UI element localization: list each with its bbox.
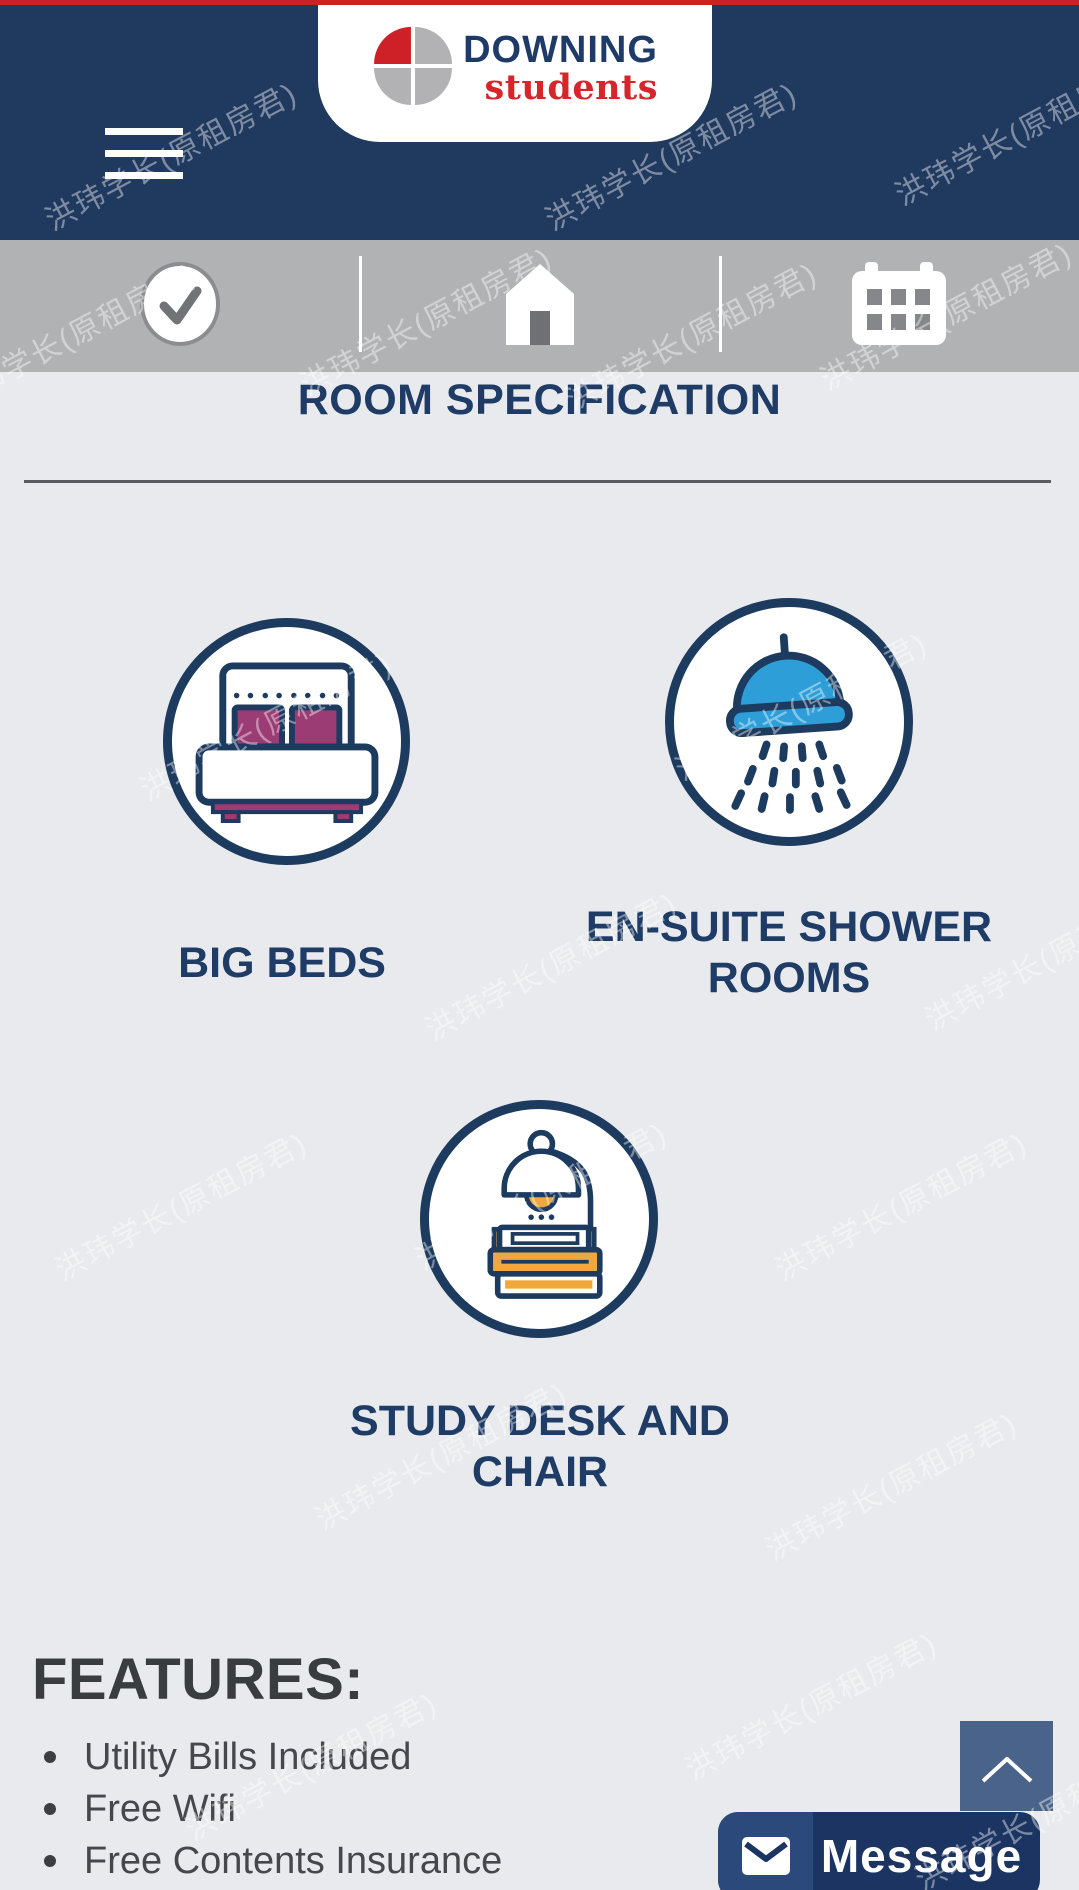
toolbar-item-home[interactable] (360, 240, 720, 372)
shower-icon (665, 598, 913, 846)
logo-line1: DOWNING (463, 31, 658, 69)
logo-text: DOWNING students (463, 31, 658, 105)
toolbar-item-calendar[interactable] (719, 240, 1079, 372)
desk-lamp-books-icon (420, 1100, 658, 1338)
feature-label-study-desk: STUDY DESK AND CHAIR (310, 1396, 770, 1497)
hamburger-menu-icon[interactable] (105, 128, 183, 182)
scroll-to-top-button[interactable] (960, 1721, 1053, 1811)
logo-line2: students (485, 70, 658, 105)
feature-list-item: Utility Bills Included (38, 1731, 502, 1783)
calendar-icon (851, 262, 947, 351)
features-list: Utility Bills Included Free Wifi Free Co… (38, 1731, 502, 1887)
envelope-icon (718, 1812, 813, 1890)
logo[interactable]: DOWNING students (318, 0, 712, 142)
logo-pie-icon (372, 25, 454, 112)
feature-label-ensuite: EN-SUITE SHOWER ROOMS (574, 902, 1004, 1003)
watermark: 洪玮学长(原租房君) (658, 1609, 961, 1798)
bed-icon (163, 618, 410, 865)
toolbar-divider (359, 256, 362, 352)
chevron-up-icon (978, 1744, 1036, 1789)
title-divider (24, 480, 1051, 483)
page: DOWNING students (0, 0, 1079, 1890)
page-title: ROOM SPECIFICATION (0, 376, 1079, 425)
watermark: 洪玮学长(原租房君) (748, 1109, 1051, 1298)
icon-toolbar (0, 240, 1079, 372)
toolbar-divider (719, 256, 722, 352)
watermark: 洪玮学长(原租房君) (28, 1109, 331, 1298)
home-icon (494, 261, 586, 352)
feature-list-item: Free Wifi (38, 1783, 502, 1835)
features-heading: FEATURES: (32, 1646, 364, 1713)
message-button[interactable]: Message (718, 1812, 1040, 1890)
feature-label-big-beds: BIG BEDS (132, 938, 432, 989)
message-button-label: Message (813, 1829, 1040, 1883)
top-accent-line (0, 0, 1079, 5)
toolbar-item-check[interactable] (0, 240, 360, 372)
check-circle-icon (139, 261, 221, 352)
watermark: 洪玮学长(原租房君) (738, 1389, 1041, 1578)
feature-list-item: Free Contents Insurance (38, 1835, 502, 1887)
